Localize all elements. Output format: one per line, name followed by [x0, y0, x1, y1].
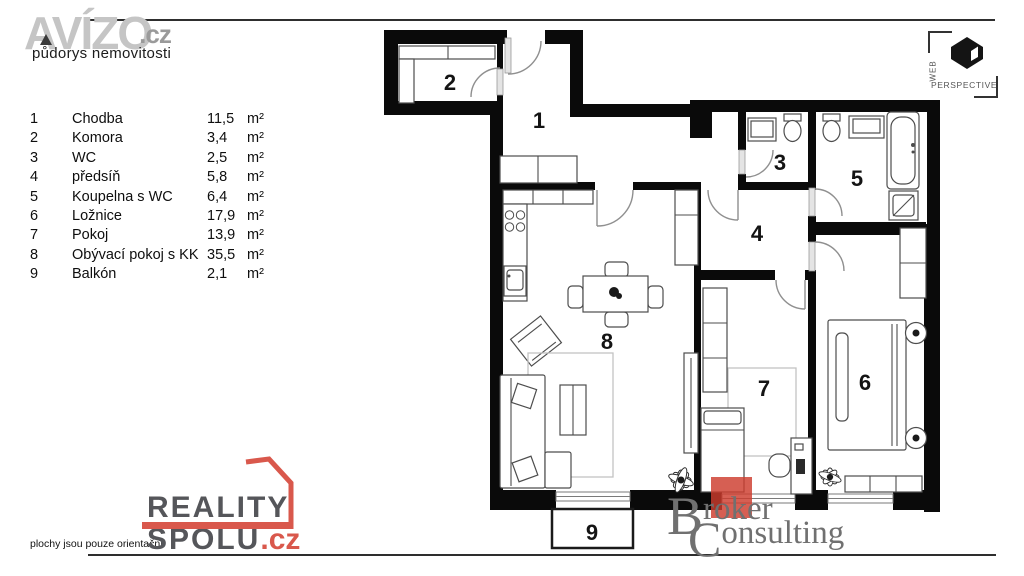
wc-fixtures	[748, 114, 801, 142]
wc-door-arc	[746, 150, 773, 177]
bathroom-door-arc	[815, 189, 842, 216]
dining-chair	[605, 312, 628, 327]
room-label-6: 6	[859, 370, 871, 395]
wc-door-leaf	[739, 150, 745, 174]
room-label-5: 5	[851, 166, 863, 191]
bed-pillow	[836, 333, 848, 421]
floorplan-page: { "header": { "avizo": { "brand": "AVÍZO…	[0, 0, 1024, 576]
shower-icon	[889, 191, 918, 220]
dining-chair	[605, 262, 628, 277]
broker-rest2: onsulting	[721, 515, 844, 551]
broker-logo-line2: Consulting	[688, 514, 844, 564]
realityspolu-house-icon	[140, 452, 300, 537]
komora-door-arc	[471, 68, 500, 97]
broker-initial-c: C	[688, 511, 721, 567]
room-label-1: 1	[533, 108, 545, 133]
dining-table	[568, 262, 663, 327]
kitchen-counter	[503, 190, 593, 301]
desk	[791, 438, 812, 494]
bedroom-door-leaf	[809, 242, 815, 271]
bathroom-fixtures	[823, 112, 919, 220]
coffee-table	[560, 385, 586, 435]
room-label-9: 9	[586, 520, 598, 545]
dining-chair	[568, 286, 583, 308]
desk-chair	[769, 454, 790, 477]
komora-door-leaf	[497, 69, 503, 95]
room4-door-arc	[708, 190, 738, 220]
bedroom-door-arc	[815, 242, 844, 271]
plant-icon	[818, 468, 842, 486]
entrance-door-leaf	[505, 38, 511, 73]
livingroom-door-arc	[597, 190, 633, 226]
room-label-8: 8	[601, 329, 613, 354]
bathroom-door-leaf	[809, 188, 815, 216]
hallway-cabinet	[500, 156, 577, 183]
room-label-3: 3	[774, 150, 786, 175]
dining-chair	[648, 286, 663, 308]
room7-door-arc	[776, 280, 805, 309]
room-label-2: 2	[444, 70, 456, 95]
living-cabinet	[675, 190, 698, 265]
entrance-door-arc	[508, 41, 541, 74]
bedroom-bench	[845, 476, 922, 492]
room-label-4: 4	[751, 221, 764, 246]
double-bed	[828, 320, 927, 450]
tv-cabinet	[684, 353, 698, 453]
room-label-7: 7	[758, 376, 770, 401]
room7-wardrobe	[703, 288, 727, 392]
armchair	[511, 316, 562, 366]
house-icon	[945, 36, 989, 74]
room6-wardrobe	[900, 228, 926, 298]
